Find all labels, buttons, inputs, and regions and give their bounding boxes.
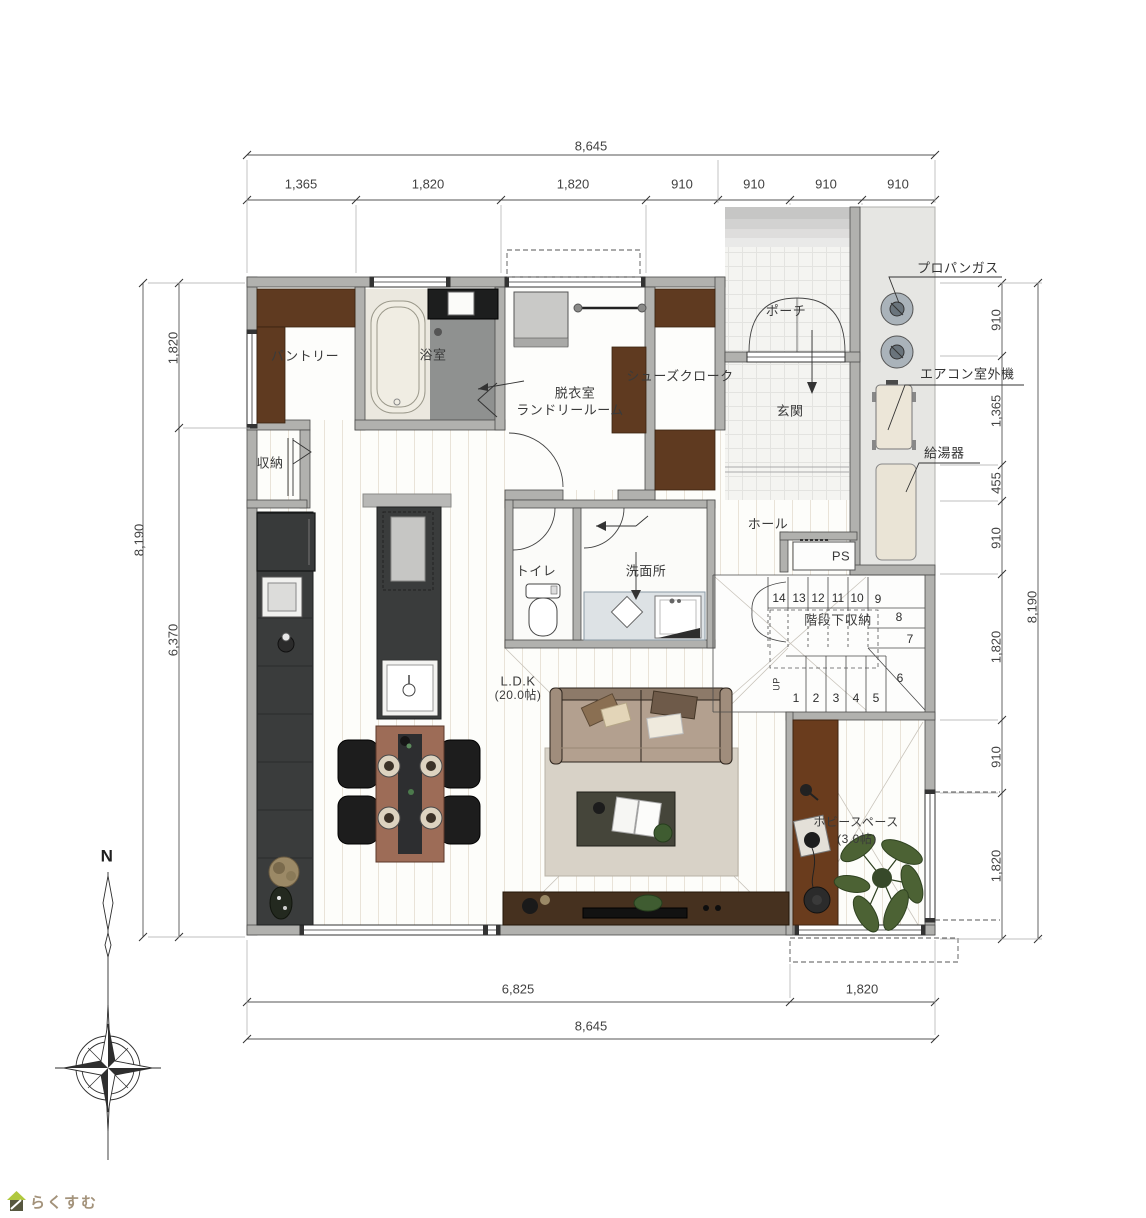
stair-step-7: 7 (907, 633, 914, 645)
room-label-porch: ポーチ (766, 305, 807, 318)
dim-right-5: 1,820 (990, 631, 1003, 664)
dim-left-1: 1,820 (167, 332, 180, 365)
dim-left-total: 8,190 (133, 524, 146, 557)
dim-right-4: 910 (990, 527, 1003, 549)
logo-text: らくすむ (30, 1196, 98, 1211)
dim-top-6: 910 (815, 178, 837, 191)
stair-step-6: 6 (897, 672, 904, 684)
kitchen-counter (257, 512, 315, 925)
room-label-shoe-closet: シューズクローク (626, 370, 733, 383)
room-label-laundry: ランドリールーム (516, 404, 624, 417)
tv-board (503, 892, 789, 925)
stair-step-13: 13 (792, 592, 805, 604)
stair-step-1: 1 (793, 692, 800, 704)
room-label-entrance: 玄関 (776, 405, 803, 418)
stair-step-4: 4 (853, 692, 860, 704)
dim-top-1: 1,365 (285, 178, 318, 191)
room-label-bath: 浴室 (419, 349, 446, 362)
sanitary-fixtures (526, 584, 705, 640)
room-label-washroom: 洗面所 (626, 565, 667, 578)
dim-bottom-2: 1,820 (846, 983, 879, 996)
stair-step-14: 14 (772, 592, 785, 604)
dim-top-3: 1,820 (557, 178, 590, 191)
room-label-closet: 収納 (256, 457, 283, 470)
dim-right-total: 8,190 (1026, 591, 1039, 624)
stair-step-12: 12 (811, 592, 824, 604)
room-label-hall: ホール (748, 518, 789, 531)
label-propane-gas: プロパンガス (917, 262, 999, 275)
dim-right-1: 910 (990, 309, 1003, 331)
dim-top-5: 910 (743, 178, 765, 191)
dim-right-7: 1,820 (990, 850, 1003, 883)
water-heater-icon (876, 464, 916, 560)
dim-right-6: 910 (990, 746, 1003, 768)
living-set (545, 688, 738, 876)
room-label-under-stair-storage: 階段下収納 (804, 614, 872, 627)
dim-top-total: 8,645 (575, 140, 608, 153)
room-label-ps: PS (832, 550, 850, 563)
floor-plan-page: パントリー 浴室 脱衣室 ランドリールーム シューズクローク 玄関 ポーチ 収納… (0, 0, 1146, 1218)
room-label-toilet: トイレ (516, 565, 557, 578)
label-ac-outdoor-unit: エアコン室外機 (920, 368, 1015, 381)
dim-bottom-1: 6,825 (502, 983, 535, 996)
dim-right-3: 455 (990, 472, 1003, 494)
dim-right-2: 1,365 (990, 395, 1003, 428)
stair-step-10: 10 (850, 592, 863, 604)
compass-north-label: N (101, 848, 114, 865)
room-label-hobby: ホビースペース (813, 816, 898, 828)
stair-step-11: 11 (832, 592, 844, 604)
stair-step-8: 8 (896, 611, 903, 623)
room-label-pantry: パントリー (271, 350, 339, 363)
stair-step-5: 5 (873, 692, 880, 704)
logo-house-icon (7, 1191, 26, 1211)
stair-step-3: 3 (833, 692, 840, 704)
room-label-dressing: 脱衣室 (555, 387, 596, 400)
dim-bottom-total: 8,645 (575, 1020, 608, 1033)
stair-step-9: 9 (875, 593, 882, 605)
stair-step-2: 2 (813, 692, 820, 704)
stairs-up-label: UP (773, 677, 782, 691)
room-label-ldk: L.D.K (500, 675, 535, 688)
room-label-ldk-area: (20.0帖) (495, 689, 542, 701)
dim-top-7: 910 (887, 178, 909, 191)
dim-left-2: 6,370 (167, 624, 180, 657)
dim-top-2: 1,820 (412, 178, 445, 191)
room-label-hobby-area: (3.0帖) (837, 833, 877, 845)
compass-icon (55, 872, 161, 1160)
label-water-heater: 給湯器 (924, 447, 965, 460)
dim-top-4: 910 (671, 178, 693, 191)
